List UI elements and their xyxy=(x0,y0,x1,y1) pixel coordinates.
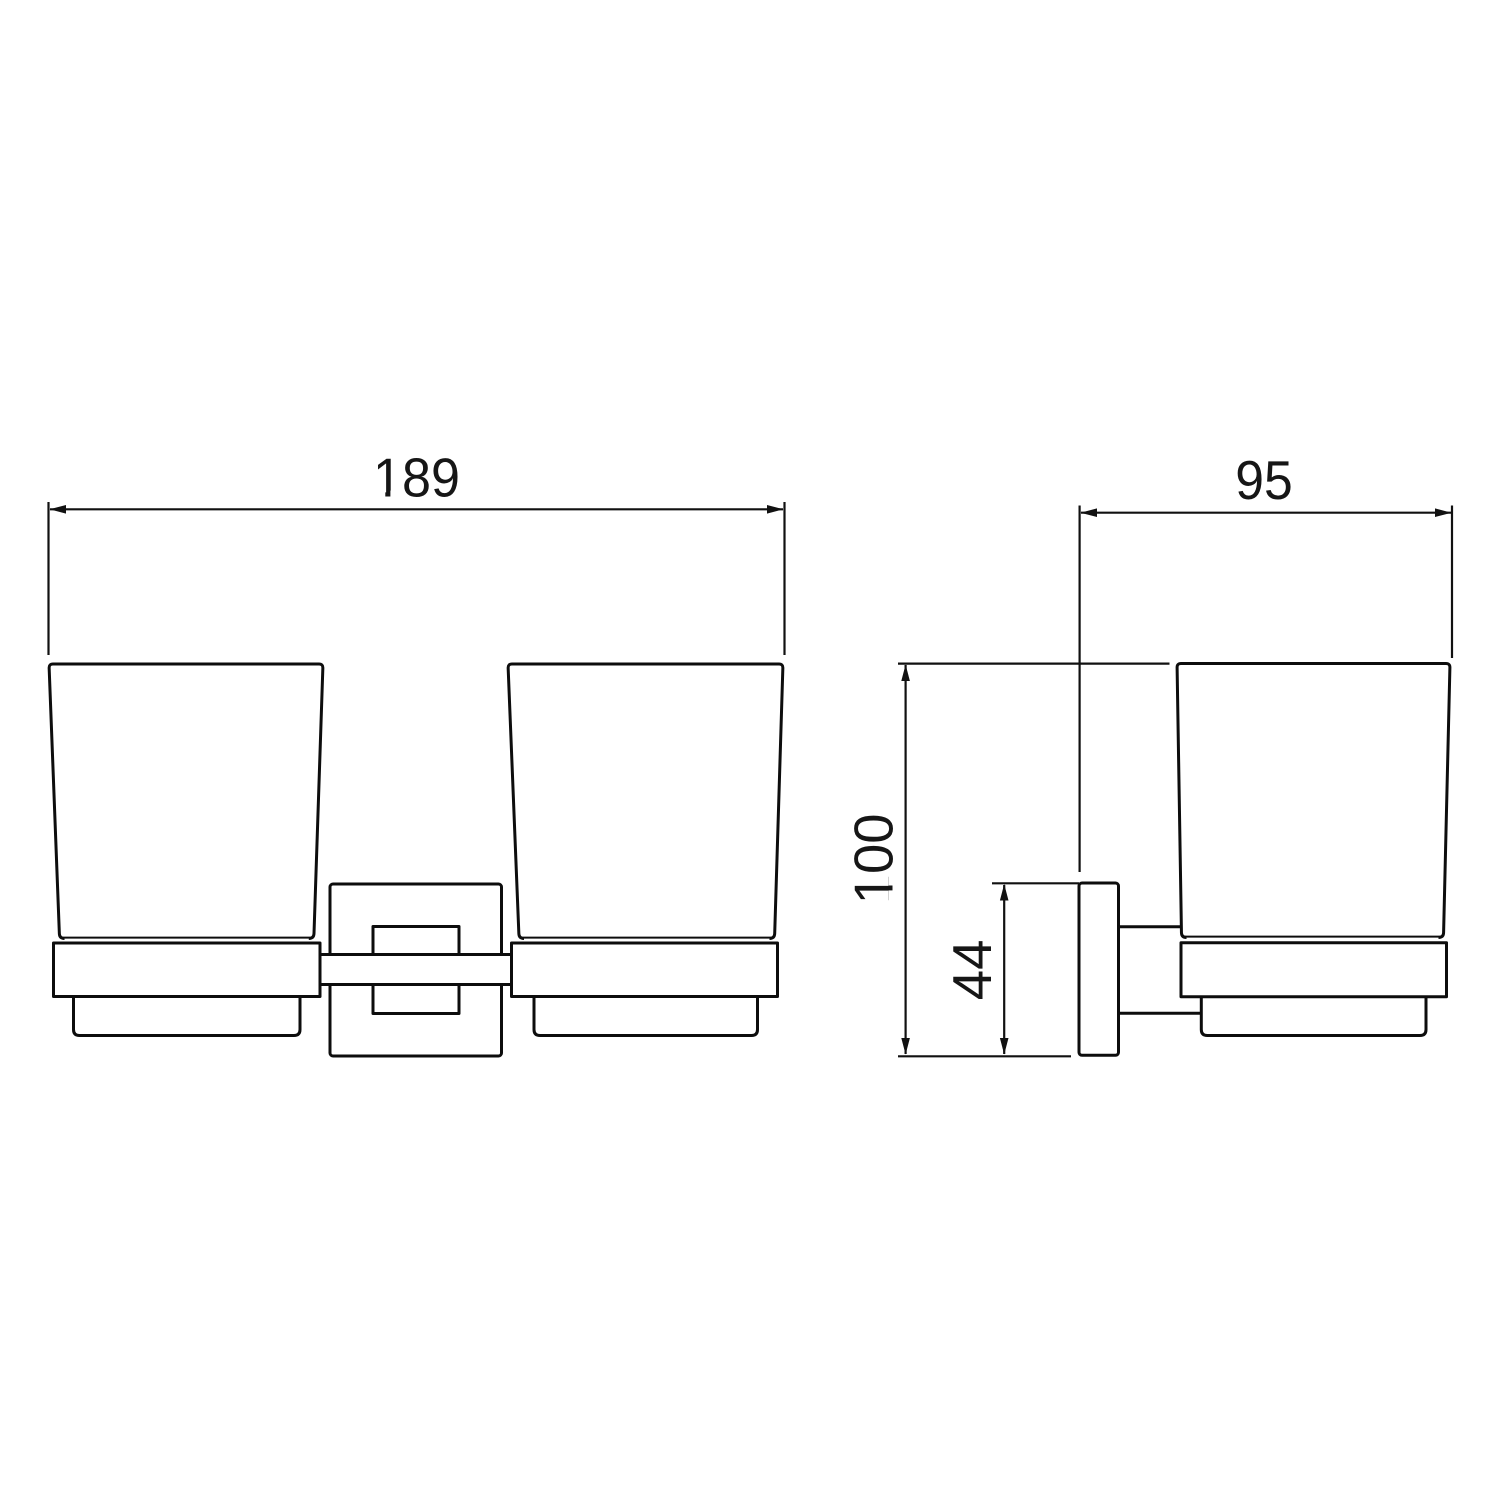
svg-text:189: 189 xyxy=(373,447,460,508)
svg-text:100: 100 xyxy=(844,813,905,904)
svg-text:44: 44 xyxy=(942,940,1003,1001)
svg-text:95: 95 xyxy=(1235,450,1293,511)
